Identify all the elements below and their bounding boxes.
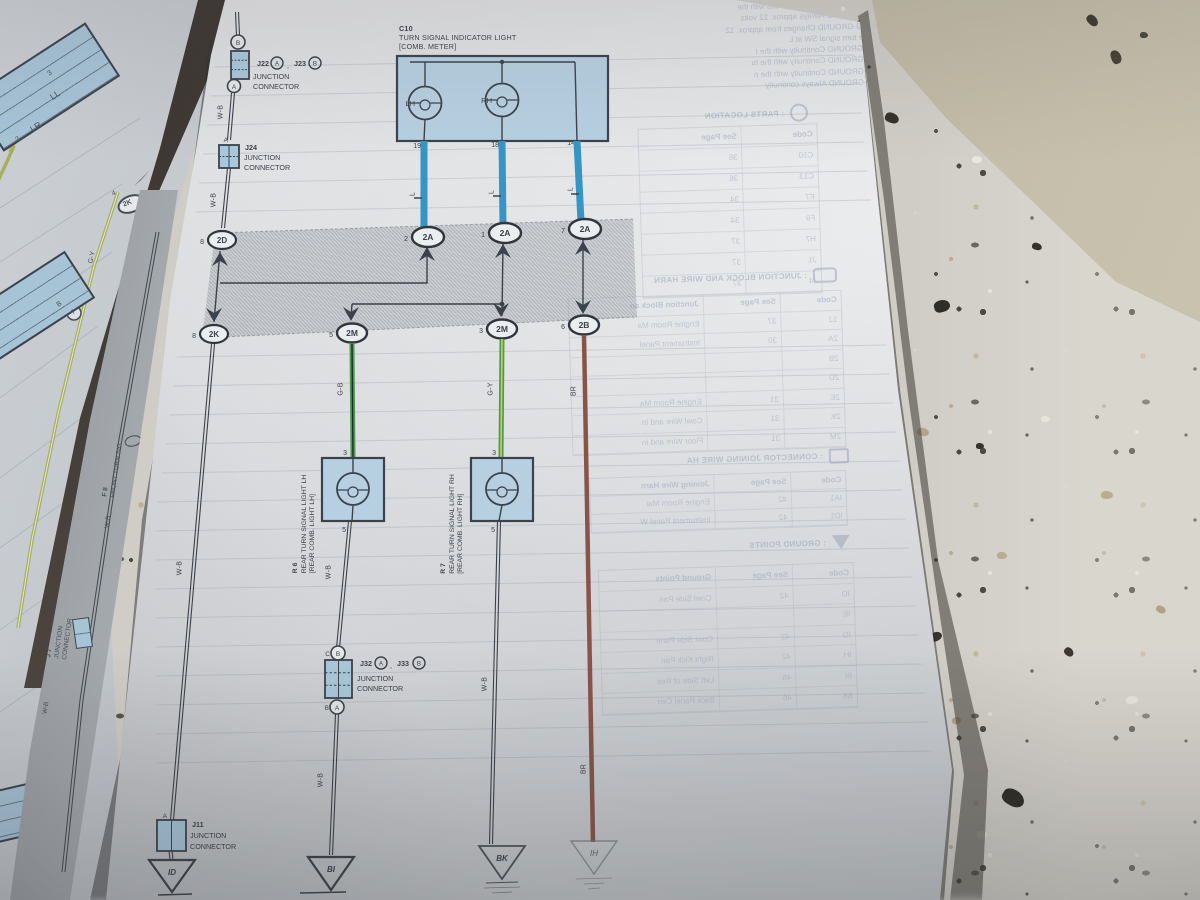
arrow-icon (134, 170, 150, 186)
ground-icon-bk: BK (479, 846, 525, 893)
svg-text:6: 6 (561, 324, 565, 331)
wire-label-wb: W-B (177, 561, 184, 575)
svg-text:B: B (236, 40, 240, 47)
svg-text:A: A (163, 813, 168, 820)
j11-junction-connector: A J11 JUNCTION CONNECTOR (157, 813, 236, 851)
svg-text:2A: 2A (500, 228, 511, 238)
j24-junction-connector: J24 JUNCTION CONNECTOR (219, 143, 290, 172)
wire-gy (501, 339, 502, 458)
svg-text:CONNECTOR: CONNECTOR (244, 163, 290, 172)
stone-chip (997, 552, 1007, 559)
svg-text:8: 8 (192, 333, 196, 340)
svg-text:JUNCTION: JUNCTION (190, 831, 226, 840)
svg-text:C: C (325, 651, 330, 658)
wire-l (424, 141, 581, 228)
c10-title: TURN SIGNAL INDICATOR LIGHT (399, 33, 516, 42)
stone-chip (976, 443, 984, 449)
pin-ticks (414, 194, 579, 198)
c10-subtitle: [COMB. METER] (399, 42, 516, 51)
svg-text:JUNCTION: JUNCTION (357, 674, 393, 683)
svg-text:1: 1 (481, 232, 485, 239)
svg-text:BI: BI (327, 865, 336, 874)
pin-19: 19 (413, 143, 421, 150)
svg-text:BK: BK (496, 854, 509, 863)
svg-text:CONNECTOR: CONNECTOR (190, 842, 236, 851)
svg-text:JUNCTION: JUNCTION (244, 153, 280, 162)
wire-label-wb: W-B (326, 565, 333, 579)
wire-label-gy: G-Y (488, 382, 495, 395)
wire-label-wb: W-B (482, 677, 489, 691)
pin-circle-letter: A (70, 309, 74, 316)
svg-text:2A: 2A (580, 224, 591, 234)
wire-label-br: BR (571, 386, 578, 396)
svg-text:,: , (287, 63, 289, 70)
r7-light-box: 3 5 (471, 450, 533, 534)
j32-j33-junction-connector: C B B A J32 A , J33 B JUNCTION CONNECTOR (325, 646, 425, 714)
wire-gb (352, 344, 353, 458)
svg-text:B: B (336, 651, 340, 658)
r6-light-box: 3 5 (322, 450, 384, 534)
svg-text:A: A (379, 661, 384, 668)
svg-text:3: 3 (492, 450, 496, 457)
junction-block-wiring (214, 240, 583, 322)
connector-ovals: 2A 2A 2A 2D 2K 2M 2M 2B 2 1 7 8 8 5 3 6 (192, 219, 601, 343)
svg-text:J11: J11 (192, 820, 204, 829)
svg-text:2B: 2B (579, 320, 590, 330)
svg-text:,: , (390, 663, 392, 670)
wire-label-l: L (410, 192, 417, 196)
ground-icon-ih: IH (571, 841, 617, 889)
svg-text:A: A (232, 84, 237, 91)
svg-text:A: A (224, 137, 229, 144)
wire-label-gb: G-B (338, 382, 345, 395)
stone-chip (1101, 491, 1113, 499)
svg-text:5: 5 (342, 527, 346, 534)
svg-text:J23: J23 (294, 59, 306, 68)
photo-of-wiring-diagram-book: 3 LL LR 2 G-Y B A 4 2K F 8 FRONT TURN SI… (0, 0, 1200, 900)
j22-j23-junction-connector: B A J22 A , J23 B JUNCTION CONNECTOR A (224, 35, 321, 144)
r7-label: R 7 REAR TURN SIGNAL LIGHT RH [REAR COMB… (440, 474, 466, 574)
svg-text:5: 5 (491, 527, 495, 534)
svg-text:J22: J22 (257, 59, 269, 68)
rh-label: RH (481, 96, 492, 105)
svg-text:2M: 2M (346, 328, 358, 338)
svg-text:A: A (275, 61, 280, 68)
svg-text:2K: 2K (209, 330, 219, 339)
svg-text:J32: J32 (360, 659, 372, 668)
svg-text:A: A (335, 705, 340, 712)
c10-code: C10 (399, 24, 516, 33)
svg-text:5: 5 (329, 332, 333, 339)
svg-text:3: 3 (479, 328, 483, 335)
svg-text:J24: J24 (245, 143, 257, 152)
svg-text:3: 3 (343, 450, 347, 457)
svg-text:2: 2 (404, 236, 408, 243)
junction-dot (500, 302, 505, 307)
ground-icon-id: ID (149, 860, 195, 895)
stone-chip (1041, 416, 1050, 422)
c10-indicator-box: LH RH 19 18 14 (397, 56, 608, 150)
svg-text:CONNECTOR: CONNECTOR (357, 684, 403, 693)
svg-text:B: B (313, 61, 317, 68)
svg-text:J33: J33 (397, 659, 409, 668)
pin-18: 18 (491, 142, 499, 149)
svg-text:8: 8 (200, 239, 204, 246)
f8-code: F 8 (101, 487, 109, 497)
svg-text:2M: 2M (496, 324, 508, 334)
svg-text:B: B (325, 705, 329, 712)
c10-header: C10 TURN SIGNAL INDICATOR LIGHT [COMB. M… (399, 24, 516, 51)
wire-label-wb: W-B (218, 105, 225, 119)
arrow-icons (206, 241, 591, 322)
svg-text:2D: 2D (217, 236, 227, 245)
wire-label-l: L (489, 190, 496, 194)
svg-text:ID: ID (168, 868, 176, 877)
r6-label: R 6 REAR TURN SIGNAL LIGHT LH [REAR COMB… (292, 475, 318, 573)
wire-label-wb: W-B (318, 773, 325, 787)
svg-text:2A: 2A (423, 232, 434, 242)
wire-label-l: L (568, 187, 575, 191)
svg-text:B: B (417, 661, 421, 668)
wall-mark (1140, 32, 1148, 38)
svg-text:IH: IH (590, 849, 598, 858)
stone-chip (972, 156, 982, 163)
svg-text:7: 7 (561, 228, 565, 235)
ground-icon-bi: BI (300, 857, 354, 893)
wire-label-wb: W-B (211, 193, 218, 207)
svg-text:JUNCTION: JUNCTION (253, 72, 289, 81)
wire-label-br: BR (581, 764, 588, 774)
svg-text:CONNECTOR: CONNECTOR (253, 82, 299, 91)
lh-label: LH (405, 99, 415, 108)
